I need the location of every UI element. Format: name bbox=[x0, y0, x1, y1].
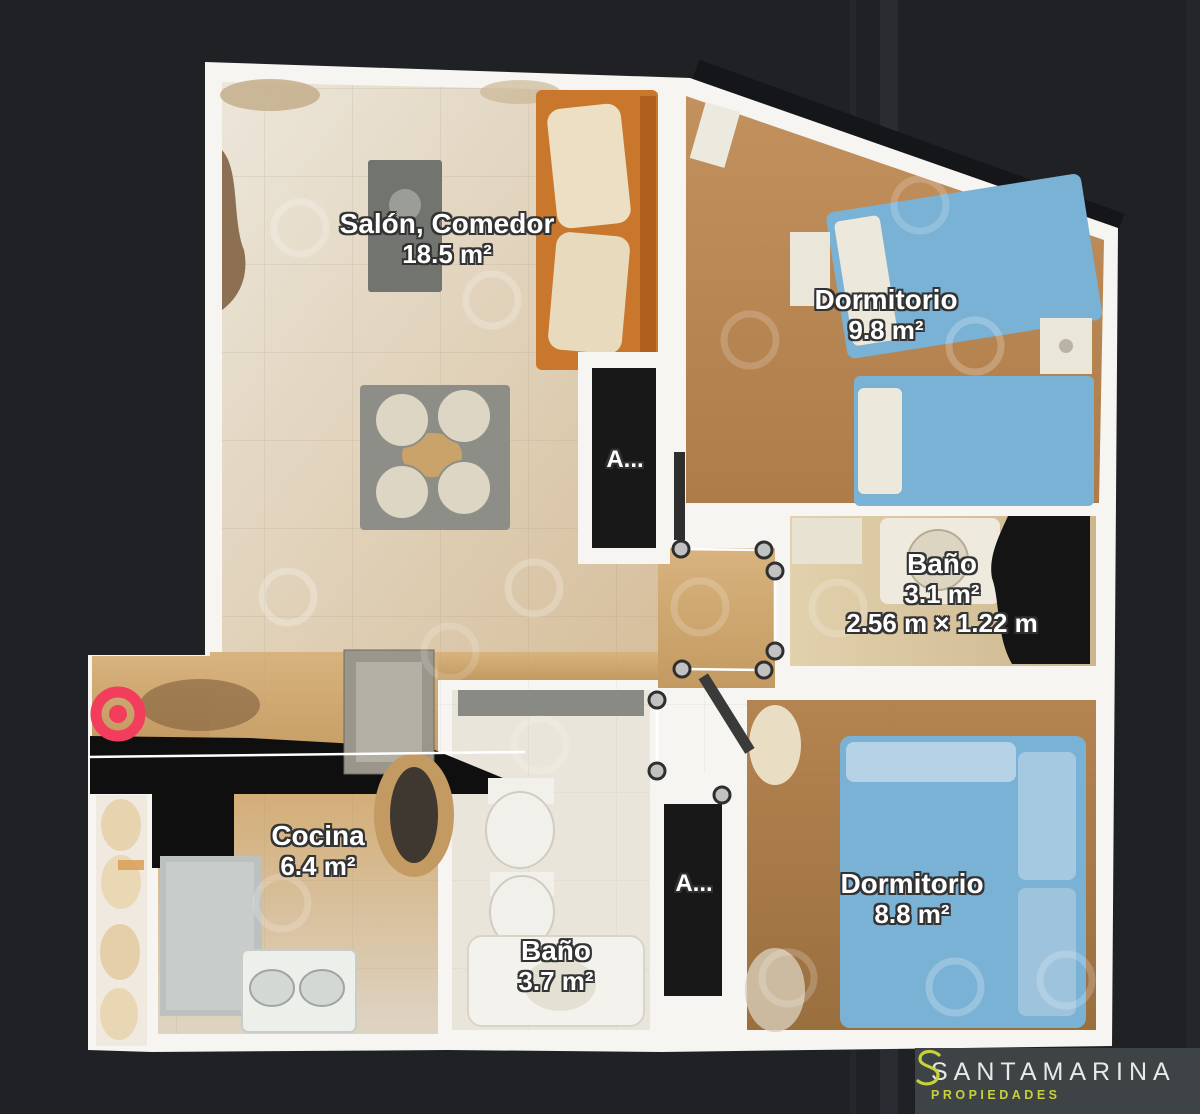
room-label-dormitorio1: Dormitorio 9.8 m² bbox=[814, 284, 957, 345]
room-area: 3.7 m² bbox=[518, 967, 593, 996]
floorplan-view[interactable]: Salón, Comedor 18.5 m² Dormitorio 9.8 m²… bbox=[0, 0, 1200, 1114]
room-name: Dormitorio bbox=[814, 284, 957, 316]
logo-brand-name: SANTAMARINA bbox=[931, 1060, 1176, 1085]
room-name: Baño bbox=[518, 935, 593, 967]
room-name: Dormitorio bbox=[840, 868, 983, 900]
room-name: Salón, Comedor bbox=[340, 208, 555, 240]
room-area: 8.8 m² bbox=[840, 900, 983, 929]
logo-text: SANTAMARINA PROPIEDADES bbox=[931, 1060, 1176, 1102]
room-area: 9.8 m² bbox=[814, 316, 957, 345]
room-label-dormitorio2: Dormitorio 8.8 m² bbox=[840, 868, 983, 929]
room-area: 3.1 m² bbox=[846, 580, 1038, 609]
closet-2 bbox=[650, 788, 742, 1010]
logo-tagline: PROPIEDADES bbox=[931, 1089, 1176, 1102]
logo-s-icon bbox=[915, 1048, 943, 1092]
closet-label-2: A... bbox=[675, 870, 712, 897]
balcony-strip bbox=[96, 795, 147, 1046]
room-label-bano1: Baño 3.1 m² 2.56 m × 1.22 m bbox=[846, 548, 1038, 638]
room-area: 18.5 m² bbox=[340, 240, 555, 269]
room-name: Cocina bbox=[271, 820, 364, 852]
room-label-salon: Salón, Comedor 18.5 m² bbox=[340, 208, 555, 269]
closet-label-1: A... bbox=[606, 446, 643, 473]
room-area: 6.4 m² bbox=[271, 852, 364, 881]
brand-logo: SANTAMARINA PROPIEDADES bbox=[915, 1048, 1200, 1114]
room-dimensions: 2.56 m × 1.22 m bbox=[846, 609, 1038, 638]
room-label-bano2: Baño 3.7 m² bbox=[518, 935, 593, 996]
room-label-cocina: Cocina 6.4 m² bbox=[271, 820, 364, 881]
room-name: Baño bbox=[846, 548, 1038, 580]
